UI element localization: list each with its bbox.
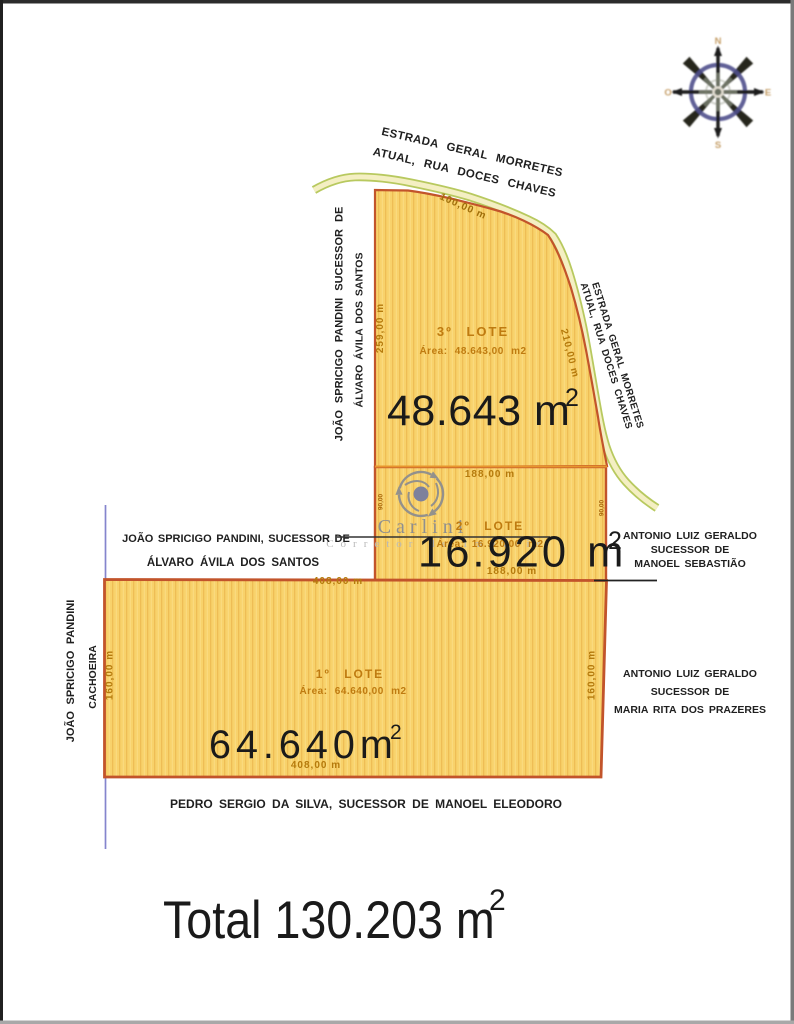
- svg-text:O: O: [664, 88, 671, 99]
- svg-text:Total 130.203 m: Total 130.203 m: [163, 890, 495, 949]
- svg-text:48.643 m: 48.643 m: [387, 387, 570, 435]
- svg-text:2: 2: [390, 721, 402, 744]
- svg-text:64.640m: 64.640m: [209, 723, 398, 767]
- svg-text:90,00: 90,00: [599, 499, 606, 516]
- svg-text:JOÃO SPRICIGO PANDINI: JOÃO SPRICIGO PANDINI: [64, 600, 77, 742]
- svg-text:Área: 64.640,00 m2: Área: 64.640,00 m2: [299, 684, 406, 697]
- svg-text:N: N: [715, 36, 722, 47]
- svg-text:ÁLVARO ÁVILA DOS SANTOS: ÁLVARO ÁVILA DOS SANTOS: [353, 253, 366, 408]
- svg-text:2: 2: [565, 384, 579, 412]
- svg-text:16.920 m: 16.920 m: [418, 528, 626, 576]
- svg-text:188,00 m: 188,00 m: [465, 469, 515, 480]
- svg-text:ANTONIO LUIZ GERALDO: ANTONIO LUIZ GERALDO: [623, 668, 757, 680]
- svg-text:2: 2: [608, 527, 622, 555]
- svg-text:90,00: 90,00: [378, 493, 385, 510]
- svg-text:160,00 m: 160,00 m: [587, 650, 598, 700]
- svg-text:JOÃO SPRICIGO PANDINI SUCESSOR: JOÃO SPRICIGO PANDINI SUCESSOR DE: [333, 207, 346, 442]
- svg-text:PEDRO SERGIO DA SILVA, SUCESSO: PEDRO SERGIO DA SILVA, SUCESSOR DE MANOE…: [170, 797, 562, 811]
- svg-text:1º LOTE: 1º LOTE: [316, 667, 384, 681]
- svg-text:3º LOTE: 3º LOTE: [437, 324, 509, 339]
- svg-text:160,00 m: 160,00 m: [105, 650, 116, 700]
- svg-text:Área: 48.643,00 m2: Área: 48.643,00 m2: [419, 344, 526, 357]
- svg-text:CACHOEIRA: CACHOEIRA: [87, 645, 99, 709]
- svg-text:408,00 m: 408,00 m: [313, 576, 363, 587]
- svg-text:S: S: [715, 140, 721, 151]
- svg-text:SUCESSOR DE: SUCESSOR DE: [651, 686, 729, 698]
- svg-text:ANTONIO LUIZ GERALDO: ANTONIO LUIZ GERALDO: [623, 530, 757, 542]
- svg-text:SUCESSOR DE: SUCESSOR DE: [651, 544, 729, 556]
- svg-text:JOÃO SPRICIGO PANDINI, SUCESSO: JOÃO SPRICIGO PANDINI, SUCESSOR DE: [122, 532, 350, 545]
- svg-text:2: 2: [489, 884, 506, 917]
- svg-text:ÁLVARO ÁVILA DOS SANTOS: ÁLVARO ÁVILA DOS SANTOS: [147, 556, 319, 569]
- svg-text:MARIA RITA DOS PRAZERES: MARIA RITA DOS PRAZERES: [614, 704, 766, 716]
- svg-text:E: E: [765, 88, 771, 99]
- svg-text:MANOEL SEBASTIÃO: MANOEL SEBASTIÃO: [634, 557, 745, 570]
- svg-text:259,00 m: 259,00 m: [375, 303, 386, 353]
